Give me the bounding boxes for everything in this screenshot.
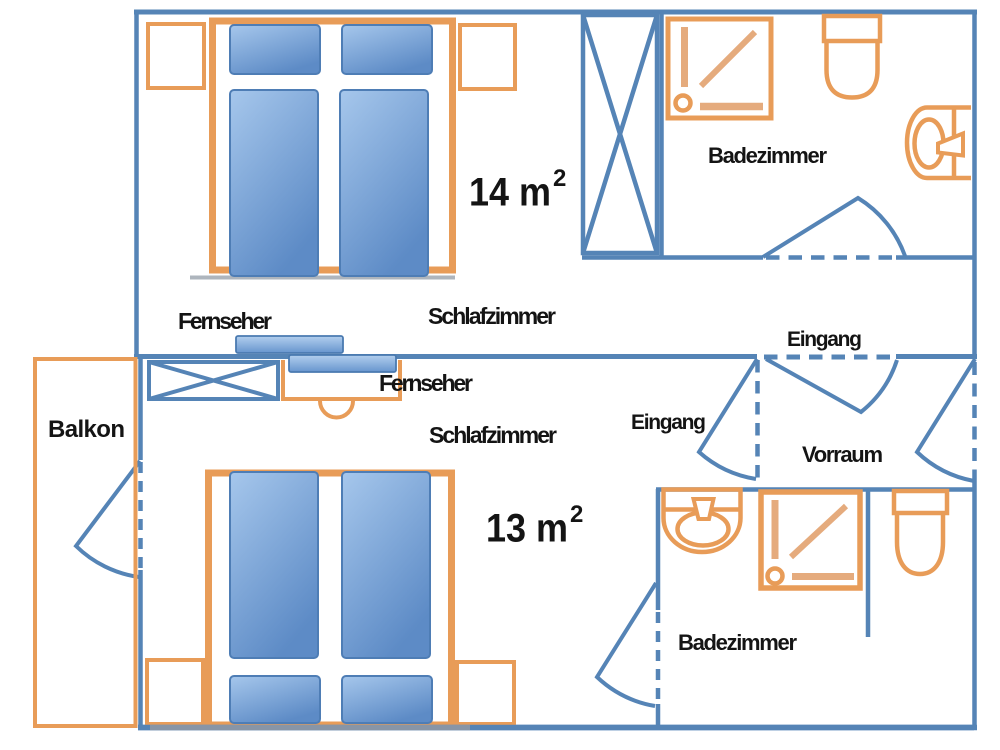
svg-text:2: 2 bbox=[553, 165, 566, 192]
svg-text:Schlafzimmer: Schlafzimmer bbox=[428, 303, 556, 329]
svg-text:Vorraum: Vorraum bbox=[802, 442, 883, 467]
svg-text:13 m: 13 m bbox=[486, 507, 568, 551]
svg-text:Schlafzimmer: Schlafzimmer bbox=[429, 422, 557, 448]
svg-text:Balkon: Balkon bbox=[48, 416, 125, 443]
svg-text:Fernseher: Fernseher bbox=[379, 370, 473, 396]
svg-text:Badezimmer: Badezimmer bbox=[678, 630, 797, 655]
svg-text:Eingang: Eingang bbox=[631, 411, 706, 434]
svg-text:14 m: 14 m bbox=[469, 171, 551, 215]
svg-text:2: 2 bbox=[570, 501, 583, 528]
svg-text:Badezimmer: Badezimmer bbox=[708, 143, 827, 168]
svg-text:Fernseher: Fernseher bbox=[178, 308, 272, 334]
svg-text:Eingang: Eingang bbox=[787, 328, 862, 351]
